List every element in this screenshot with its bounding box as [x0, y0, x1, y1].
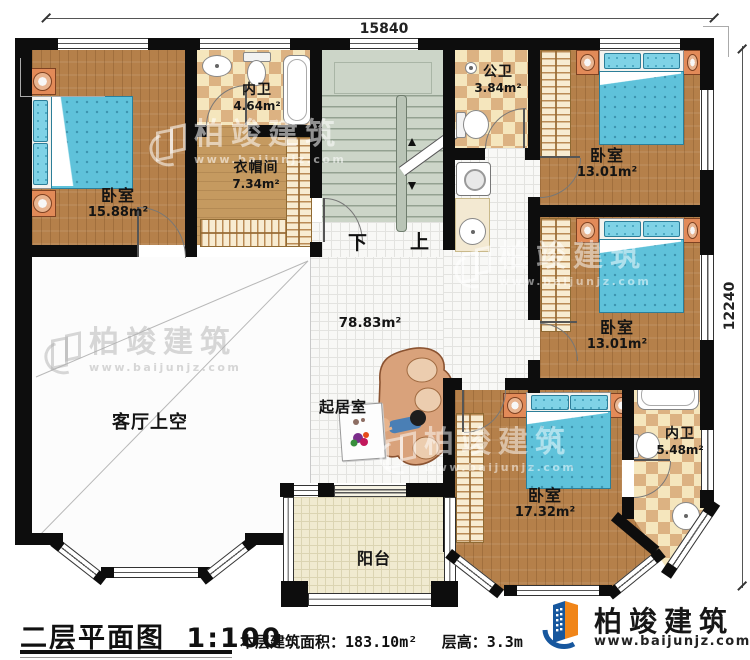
- floor-plan-canvas: 柏竣建筑 www.baijunjz.com 柏竣建筑 www.baijunjz.…: [0, 0, 750, 660]
- balcony-pillar: [281, 581, 308, 607]
- nightstand: [576, 218, 599, 243]
- room-label-ensuite-1: 内卫 4.64m²: [222, 82, 292, 113]
- wall-segment: [248, 125, 310, 137]
- nightstand: [576, 50, 599, 75]
- hall-area-label: 78.83m²: [337, 315, 403, 331]
- room-label-bedroom-1: 卧室 15.88m²: [73, 186, 163, 221]
- floor-height-label: 层高：: [442, 633, 487, 651]
- stair-down-arrow: [408, 182, 416, 190]
- room-label-bedroom-4: 卧室 17.32m²: [505, 486, 585, 521]
- dimension-top-value: 15840: [352, 21, 416, 37]
- bedroom-3-wardrobe: [541, 218, 571, 332]
- void-marking-lines: [32, 257, 310, 547]
- title-underline-2: [20, 657, 232, 659]
- floor-area-label: 本层建筑面积：: [240, 633, 345, 651]
- window: [200, 38, 290, 49]
- wall-segment: [310, 242, 322, 257]
- wall-segment: [280, 483, 294, 497]
- bed-pillow: [531, 395, 569, 410]
- dimension-right-value: 12240: [722, 274, 738, 338]
- cloakroom-wardrobe: [200, 219, 290, 247]
- cloakroom-wardrobe: [286, 137, 312, 247]
- bed-pillow: [33, 100, 48, 142]
- void-hall-divider-line: [310, 257, 311, 483]
- bedroom-2-wardrobe: [541, 50, 571, 158]
- window: [350, 38, 418, 49]
- bed-pillow: [33, 143, 48, 185]
- bed-pillow: [643, 53, 680, 69]
- window: [58, 38, 148, 49]
- wall-segment: [418, 38, 600, 50]
- wall-segment: [443, 148, 485, 160]
- wall-segment: [197, 125, 207, 137]
- wall-segment: [185, 50, 197, 257]
- sliding-door: [334, 485, 408, 497]
- balcony-railing: [283, 497, 294, 583]
- wall-segment: [528, 197, 540, 320]
- sink-icon: [459, 218, 486, 245]
- bay-window: [101, 567, 211, 578]
- bed-sheet: [52, 97, 94, 186]
- balcony-railing: [444, 497, 456, 583]
- wall-segment: [148, 38, 200, 50]
- stair-up-arrow: [408, 138, 416, 146]
- wall-segment: [622, 390, 634, 460]
- room-label-living-void: 客厅上空: [95, 412, 205, 434]
- bed-sheet: [600, 72, 681, 94]
- window: [294, 485, 318, 496]
- bed-pillow: [604, 53, 641, 69]
- wall-segment: [15, 38, 32, 545]
- room-label-public-bath: 公卫 3.84m²: [462, 64, 534, 95]
- brand-logo-icon: [540, 594, 588, 650]
- wall-segment: [15, 245, 137, 257]
- room-label-family-room: 起居室: [311, 398, 375, 416]
- wall-segment: [310, 50, 322, 198]
- balcony-railing: [308, 593, 433, 606]
- bed-pillow: [570, 395, 608, 410]
- extension-line: [20, 58, 105, 97]
- bed-pillow: [643, 221, 680, 237]
- room-label-bedroom-3: 卧室 13.01m²: [579, 318, 655, 353]
- bed-sheet: [527, 412, 608, 432]
- floor-height-value: 3.3m: [487, 633, 523, 651]
- wall-segment: [290, 38, 350, 50]
- floor-stats: 本层建筑面积：183.10m² 层高：3.3m: [240, 631, 523, 652]
- room-label-bedroom-2: 卧室 13.01m²: [569, 146, 645, 181]
- washing-machine-icon: [456, 162, 491, 196]
- room-label-balcony: 阳台: [346, 549, 402, 568]
- balcony-pillar: [431, 581, 458, 607]
- wall-segment: [443, 378, 462, 390]
- flower-decor: [346, 414, 376, 450]
- nightstand: [29, 190, 56, 217]
- wall-segment: [406, 483, 455, 497]
- wall-segment: [505, 378, 714, 390]
- nightstand: [503, 393, 527, 418]
- stairs-up-label: 上: [410, 227, 429, 254]
- window: [701, 255, 714, 340]
- bed-sheet: [600, 240, 681, 262]
- wall-segment: [318, 483, 334, 497]
- extension-line: [703, 26, 729, 57]
- floor-area-value: 183.10m²: [345, 633, 417, 651]
- bed-pillow: [604, 221, 641, 237]
- wall-segment: [540, 205, 714, 217]
- title-underline: [20, 650, 232, 654]
- dimension-line-top: [45, 18, 715, 19]
- toilet-bowl-icon: [463, 110, 489, 139]
- wall-segment: [622, 497, 634, 519]
- stairs-down-label: 下: [348, 228, 367, 255]
- dimension-line-right: [742, 46, 743, 588]
- window: [600, 38, 680, 49]
- room-label-ensuite-2: 内卫 5.48m²: [644, 426, 716, 457]
- window: [701, 90, 714, 170]
- sink-icon: [202, 55, 232, 77]
- stair-landing-outline: [334, 62, 432, 94]
- brand-website: www.baijunjz.com: [594, 634, 750, 649]
- room-label-cloakroom: 衣帽间 7.34m²: [216, 160, 296, 191]
